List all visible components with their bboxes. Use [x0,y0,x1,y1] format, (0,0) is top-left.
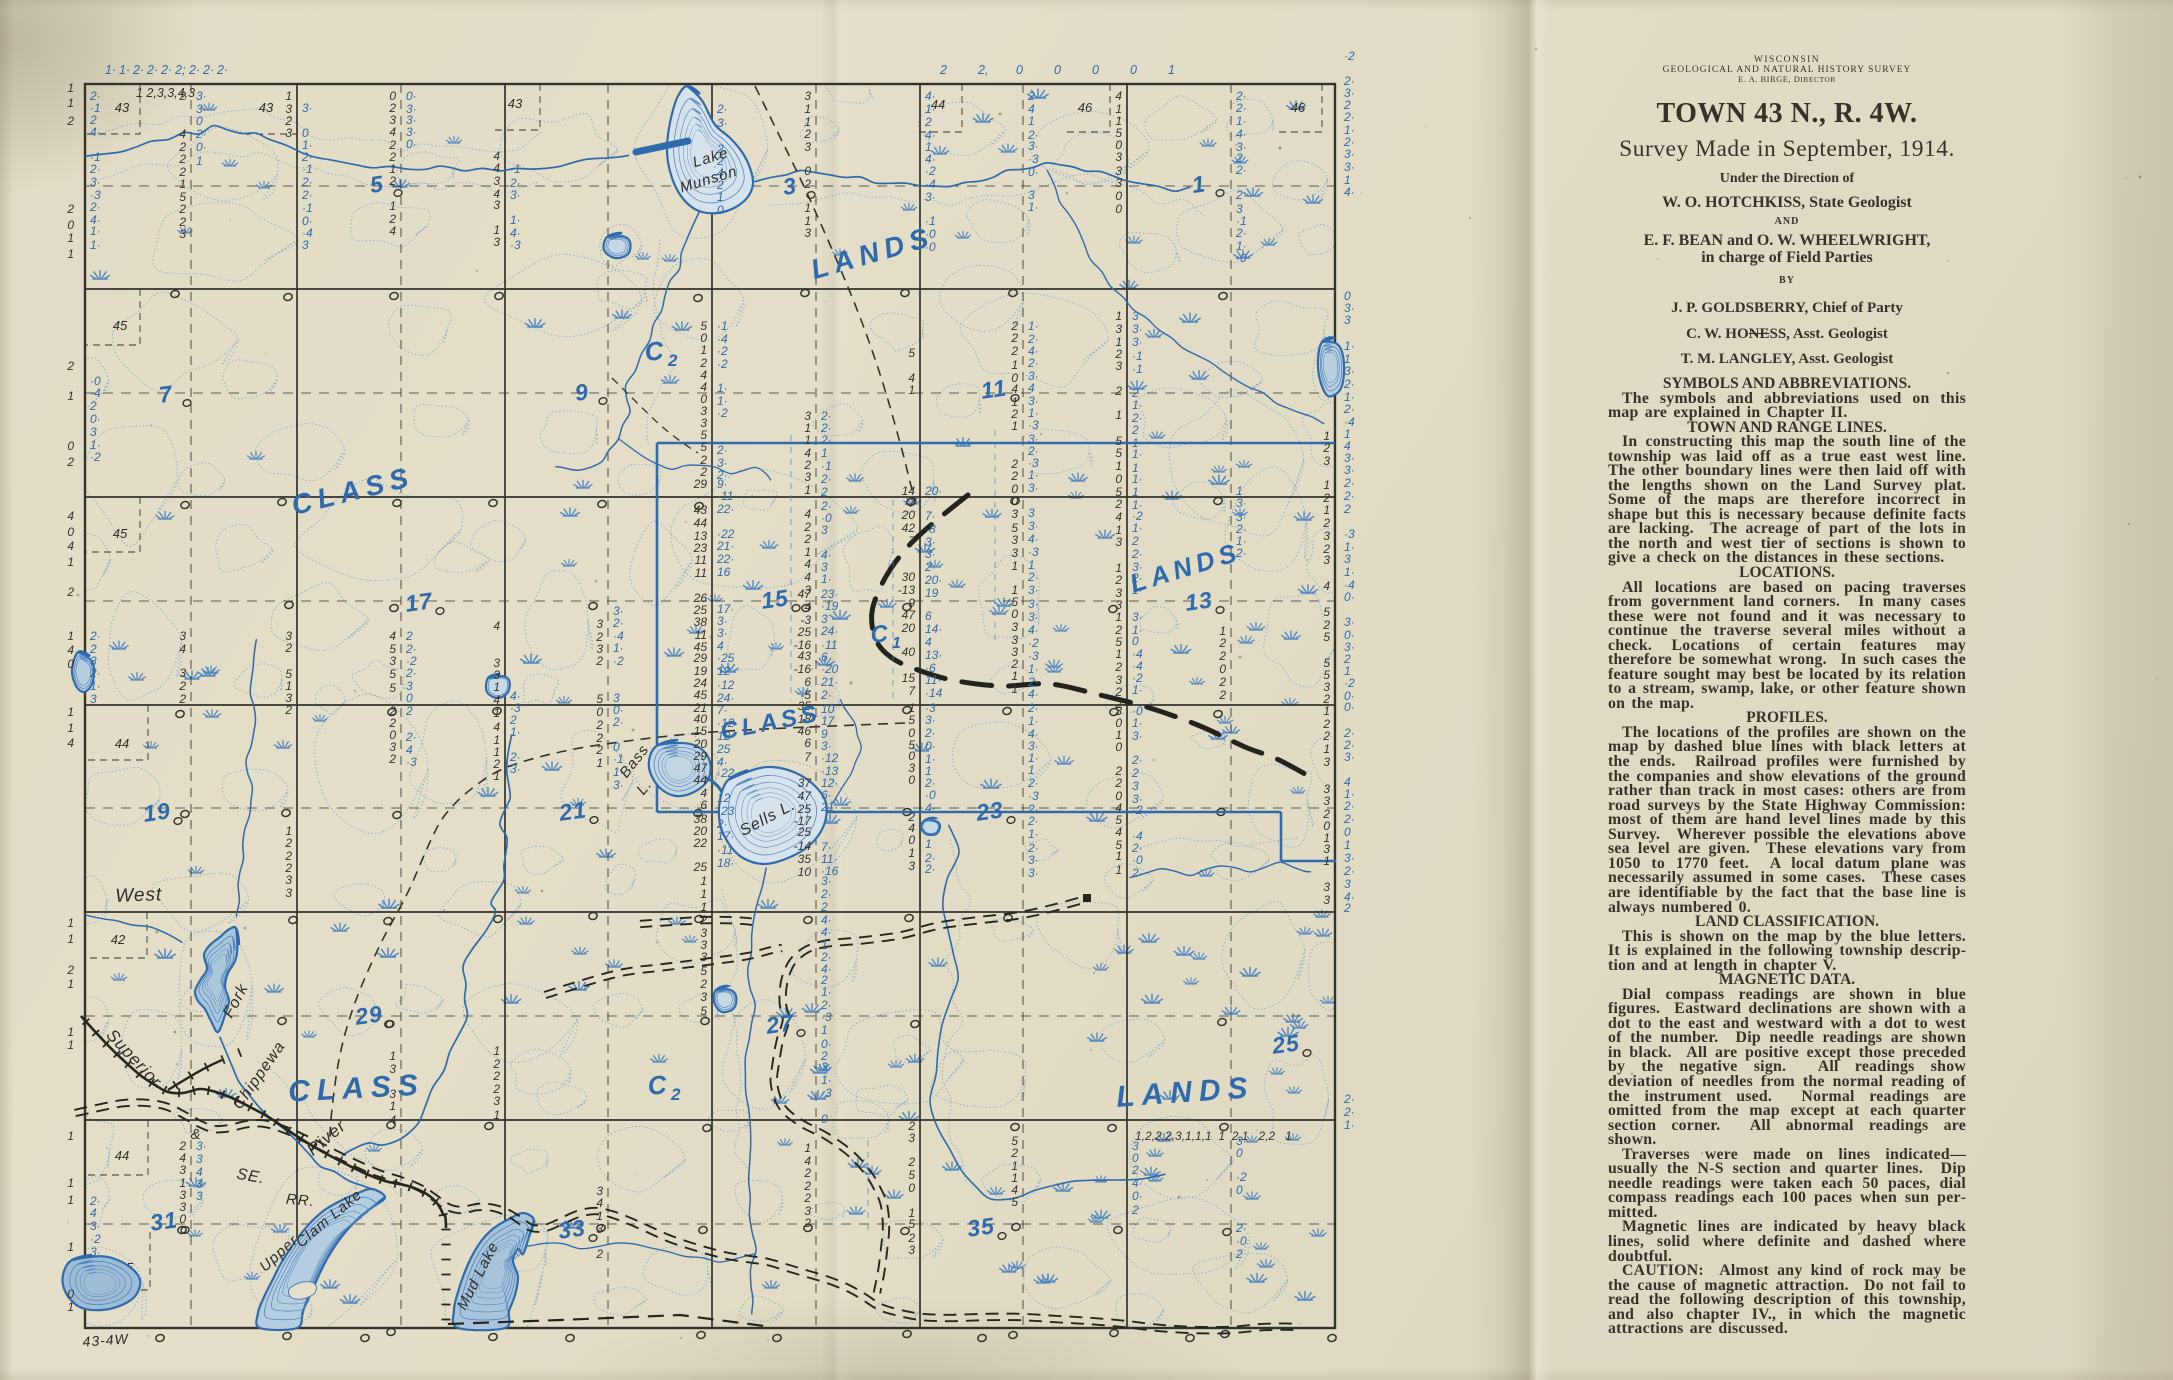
svg-text:3: 3 [1344,313,1351,327]
svg-text:1: 1 [1323,478,1330,492]
svg-text:1: 1 [1115,610,1122,624]
svg-text:2: 2 [667,351,678,370]
svg-text:1: 1 [67,932,74,946]
svg-text:3: 3 [1323,794,1330,808]
svg-text:1: 1 [285,89,292,103]
svg-text:17: 17 [821,714,836,728]
svg-text:1: 1 [908,846,915,860]
svg-text:4: 4 [1323,579,1330,593]
svg-text:3: 3 [908,1243,915,1257]
svg-text:0: 0 [1236,1146,1243,1160]
svg-text:1: 1 [67,705,74,719]
svg-text:11: 11 [695,553,707,567]
svg-text:·3: ·3 [821,1010,832,1024]
svg-text:2·: 2· [1343,864,1355,878]
svg-text:SE.: SE. [235,1166,266,1188]
svg-text:25: 25 [693,860,708,874]
svg-text:6: 6 [804,736,811,750]
svg-text:2: 2 [1114,660,1122,674]
svg-text:2·: 2· [612,616,624,630]
svg-text:C: C [646,1069,669,1101]
svg-text:1: 1 [67,1025,74,1039]
svg-text:3: 3 [1115,535,1122,549]
svg-text:3: 3 [90,425,97,439]
svg-text:1·: 1· [1132,521,1143,535]
svg-text:4·: 4· [925,89,936,103]
svg-text:2·: 2· [1343,1105,1355,1119]
svg-text:2: 2 [66,359,74,373]
svg-text:3: 3 [493,174,500,188]
svg-text:1: 1 [804,102,811,116]
svg-text:·12: ·12 [717,678,735,692]
svg-text:22·: 22· [716,552,734,566]
svg-text:1: 1 [892,635,901,652]
svg-text:2·: 2· [146,63,158,77]
svg-text:·1: ·1 [1132,349,1143,363]
svg-text:2: 2 [1131,766,1139,780]
svg-text:·0: ·0 [1132,853,1143,867]
svg-text:1·: 1· [1132,398,1143,412]
svg-text:1·: 1· [1132,683,1143,697]
svg-text:1: 1 [67,1129,74,1143]
svg-text:1: 1 [804,433,811,447]
svg-text:3: 3 [1132,779,1139,793]
svg-text:1: 1 [1132,485,1139,499]
svg-text:4·: 4· [1028,687,1039,701]
svg-text:1·: 1· [1236,114,1247,128]
svg-text:21·: 21· [820,800,838,814]
svg-text:2: 2 [595,654,603,668]
svg-text:3: 3 [781,172,798,200]
svg-text:2: 2 [1010,469,1018,483]
svg-text:·1: ·1 [302,162,313,176]
svg-text:2·: 2· [1235,163,1247,177]
svg-text:·23: ·23 [717,804,735,818]
svg-text:19: 19 [141,797,172,827]
svg-text:5: 5 [596,692,603,706]
svg-text:3: 3 [1115,176,1122,190]
svg-text:1: 1 [1028,114,1035,128]
svg-text:2·: 2· [89,629,101,643]
svg-text:0·: 0· [1344,590,1355,604]
svg-text:5: 5 [389,681,396,695]
svg-text:21: 21 [556,796,588,826]
svg-text:3: 3 [196,1152,203,1166]
svg-text:·2: ·2 [90,1232,101,1246]
svg-text:40: 40 [902,645,916,659]
svg-text:1·: 1· [90,679,101,693]
svg-text:1·: 1· [1132,716,1143,730]
svg-text:3: 3 [908,1131,915,1145]
svg-text:44: 44 [694,516,708,530]
svg-text:0: 0 [804,164,811,178]
svg-text:1: 1 [717,190,724,204]
svg-text:10: 10 [798,865,812,879]
svg-text:3: 3 [1011,533,1018,547]
svg-text:47: 47 [798,789,813,803]
svg-text:0: 0 [1054,63,1061,77]
svg-text:·2: ·2 [717,357,728,371]
svg-text:1·: 1· [821,985,832,999]
svg-text:·14: ·14 [925,686,943,700]
svg-text:2: 2 [1131,1203,1139,1217]
svg-text:0: 0 [1115,472,1122,486]
svg-text:2: 2 [803,1166,811,1180]
svg-text:0·: 0· [717,203,728,217]
svg-text:43-4W: 43-4W [82,1330,130,1349]
svg-text:24·: 24· [820,624,838,638]
svg-text:2·: 2· [1027,701,1039,715]
svg-text:·3: ·3 [1344,527,1355,541]
svg-text:4: 4 [493,619,500,633]
svg-text:2·: 2· [89,666,101,680]
svg-text:43: 43 [798,649,812,663]
svg-text:-13: -13 [898,583,916,597]
svg-text:3·: 3· [821,1060,832,1074]
svg-text:2: 2 [1010,1146,1018,1160]
svg-text:2: 2 [1010,344,1018,358]
svg-text:1: 1 [67,1240,74,1254]
svg-text:2: 2 [907,1155,915,1169]
svg-text:3·: 3· [1132,322,1143,336]
svg-text:4: 4 [804,507,811,521]
svg-text:27: 27 [763,1009,795,1039]
svg-text:3: 3 [285,873,292,887]
svg-text:·3: ·3 [1028,789,1039,803]
svg-text:15: 15 [759,584,790,614]
svg-text:2·: 2· [301,175,313,189]
svg-text:·2: ·2 [613,654,624,668]
svg-text:1: 1 [179,177,186,191]
svg-text:2: 2 [1218,688,1226,702]
svg-text:44: 44 [115,1148,129,1163]
svg-text:4: 4 [804,557,811,571]
svg-text:3·: 3· [1344,364,1355,378]
svg-text:3: 3 [179,1163,186,1177]
svg-text:3·: 3· [1344,750,1355,764]
svg-text:45: 45 [113,526,128,541]
svg-text:3·: 3· [925,713,936,727]
svg-text:3: 3 [1132,309,1139,323]
svg-text:4: 4 [1028,381,1035,395]
svg-text:1·: 1· [613,641,624,655]
svg-text:3: 3 [1115,150,1122,164]
svg-text:3·: 3· [1344,851,1355,865]
svg-text:3·: 3· [1028,853,1039,867]
svg-text:4: 4 [804,570,811,584]
svg-text:3: 3 [285,886,292,900]
svg-text:2: 2 [820,900,828,914]
svg-text:0: 0 [1011,494,1018,508]
svg-text:2: 2 [1131,423,1139,437]
svg-text:1: 1 [1115,459,1122,473]
svg-text:1: 1 [67,1193,74,1207]
svg-text:0·: 0· [90,412,101,426]
svg-text:1: 1 [804,483,811,497]
svg-text:2: 2 [699,913,707,927]
svg-text:3: 3 [1344,877,1351,891]
svg-text:·0: ·0 [1236,1234,1247,1248]
svg-text:5: 5 [700,964,707,978]
svg-text:2: 2 [178,679,186,693]
svg-text:·4: ·4 [925,177,936,191]
svg-text:2: 2 [405,704,413,718]
svg-text:·25: ·25 [717,651,735,665]
svg-text:1: 1 [493,1108,500,1122]
svg-text:4: 4 [925,635,932,649]
svg-text:3·: 3· [1344,160,1355,174]
svg-text:1: 1 [1011,419,1018,433]
svg-text:17: 17 [403,587,434,617]
svg-text:2·: 2· [132,63,144,77]
svg-text:1: 1 [1344,838,1351,852]
svg-text:2: 2 [492,1069,500,1083]
svg-text:1·: 1· [717,381,728,395]
svg-text:6: 6 [804,675,811,689]
svg-text:22: 22 [693,836,708,850]
svg-text:0: 0 [908,1181,915,1195]
svg-text:4: 4 [67,509,74,523]
svg-text:·2: ·2 [1236,1170,1247,1184]
svg-text:1: 1 [389,1049,396,1063]
svg-text:1: 1 [1168,63,1175,77]
svg-text:1: 1 [821,446,828,460]
svg-text:2·: 2· [820,472,832,486]
svg-text:2·: 2· [301,188,313,202]
svg-text:3·: 3· [1028,519,1039,533]
svg-text:1: 1 [700,874,707,888]
svg-text:5: 5 [1115,446,1122,460]
svg-text:43: 43 [694,503,708,517]
svg-text:1: 1 [925,837,932,851]
svg-text:25: 25 [797,625,812,639]
svg-text:20: 20 [901,621,916,635]
svg-text:0: 0 [1011,607,1018,621]
svg-text:·2: ·2 [1344,676,1355,690]
svg-text:2;: 2; [174,63,186,77]
svg-text:3: 3 [1344,552,1351,566]
svg-text:3: 3 [90,692,97,706]
svg-text:44: 44 [115,736,129,751]
svg-text:3: 3 [389,654,396,668]
svg-text:0·: 0· [1132,1189,1143,1203]
svg-text:·2: ·2 [90,450,101,464]
svg-text:4: 4 [493,161,500,175]
svg-text:2·: 2· [216,63,228,77]
svg-text:0: 0 [67,218,74,232]
svg-text:·3: ·3 [406,755,417,769]
svg-text:3·: 3· [1344,147,1355,161]
svg-text:1·: 1· [1344,565,1355,579]
svg-text:3·: 3· [925,547,936,561]
svg-text:29: 29 [352,1000,384,1030]
svg-text:2,: 2, [977,63,988,77]
svg-text:12: 12 [717,791,731,805]
svg-text:2·: 2· [1131,866,1143,880]
svg-text:2: 2 [803,532,811,546]
svg-text:1: 1 [1011,682,1018,696]
svg-text:3·: 3· [196,89,207,103]
svg-text:2: 2 [284,703,292,717]
svg-text:2: 2 [1322,516,1330,530]
svg-text:3: 3 [285,126,292,140]
svg-text:4: 4 [1115,89,1122,103]
svg-text:4: 4 [67,736,74,750]
svg-text:1·: 1· [821,1073,832,1087]
svg-text:43: 43 [259,100,274,115]
svg-text:3·: 3· [1028,866,1039,880]
svg-text:3: 3 [1115,359,1122,373]
svg-text:2·: 2· [1343,1092,1355,1106]
svg-text:2: 2 [1343,901,1351,915]
svg-text:5: 5 [700,1004,707,1018]
svg-text:1: 1 [67,389,74,403]
svg-text:25: 25 [797,825,812,839]
svg-text:4: 4 [389,629,396,643]
svg-text:2: 2 [405,629,413,643]
svg-text:3·: 3· [1132,335,1143,349]
svg-text:21·: 21· [716,539,734,553]
svg-text:1·: 1· [821,572,832,586]
svg-text:1: 1 [67,81,74,95]
svg-text:3: 3 [804,89,811,103]
svg-text:1: 1 [1115,647,1122,661]
svg-text:2·: 2· [1343,110,1355,124]
svg-text:0: 0 [1115,202,1122,216]
svg-text:1: 1 [1323,503,1330,517]
svg-text:3·: 3· [302,101,313,115]
svg-text:-14: -14 [794,839,812,853]
svg-text:11·: 11· [925,673,941,687]
svg-text:2: 2 [1010,331,1018,345]
svg-text:2: 2 [284,836,292,850]
svg-text:22·: 22· [716,502,734,516]
svg-text:1·: 1· [105,63,116,77]
svg-text:3·: 3· [90,1245,101,1259]
svg-text:15: 15 [902,671,916,685]
svg-text:·11: ·11 [717,843,733,857]
svg-text:1: 1 [804,201,811,215]
svg-text:0: 0 [196,114,203,128]
svg-text:·3: ·3 [1028,152,1039,166]
svg-text:·0: ·0 [925,788,936,802]
svg-text:4: 4 [493,693,500,707]
svg-text:3: 3 [302,238,309,252]
svg-text:0·: 0· [406,137,417,151]
svg-text:5: 5 [368,170,385,198]
svg-text:2: 2 [595,718,603,732]
svg-text:20·: 20· [924,484,942,498]
svg-text:2·: 2· [195,127,207,141]
svg-text:·2: ·2 [717,406,728,420]
svg-text:LANDS: LANDS [1115,1071,1255,1114]
svg-text:3·: 3· [1028,597,1039,611]
svg-text:2: 2 [820,485,828,499]
svg-text:7·: 7· [925,509,936,523]
svg-text:29: 29 [693,651,708,665]
svg-text:1: 1 [493,706,500,720]
svg-text:2: 2 [388,752,396,766]
svg-text:0: 0 [596,705,603,719]
svg-text:3·: 3· [613,778,624,792]
svg-text:18·: 18· [717,856,734,870]
svg-text:·12: ·12 [821,751,839,765]
svg-text:42: 42 [902,521,916,535]
svg-text:2: 2 [66,202,74,216]
svg-text:7: 7 [908,684,916,698]
svg-text:C: C [643,335,666,367]
svg-text:2·: 2· [1027,776,1039,790]
svg-text:1 2,3,3,4,3: 1 2,3,3,4,3 [136,86,195,100]
svg-text:4: 4 [1011,382,1018,396]
svg-text:1: 1 [1323,704,1330,718]
svg-text:2: 2 [1114,573,1122,587]
svg-text:13: 13 [1183,586,1214,616]
svg-text:2·: 2· [612,715,624,729]
svg-text:4: 4 [179,127,186,141]
svg-text:2: 2 [803,1216,811,1230]
svg-text:·8: ·8 [925,522,936,536]
svg-text:4: 4 [493,720,500,734]
svg-text:2·: 2· [188,63,200,77]
svg-text:3: 3 [596,1222,603,1236]
svg-text:35: 35 [798,852,812,866]
svg-text:0·: 0· [1028,165,1039,179]
svg-text:2·: 2· [820,887,832,901]
svg-text:1·: 1· [1028,468,1039,482]
svg-text:0: 0 [1132,634,1139,648]
svg-text:43: 43 [508,96,523,111]
svg-text:2·: 2· [1235,226,1247,240]
svg-text:3: 3 [700,990,707,1004]
svg-text:1: 1 [389,199,396,213]
svg-text:1: 1 [1323,854,1330,868]
svg-text:3: 3 [1011,620,1018,634]
svg-text:1·: 1· [119,63,130,77]
svg-text:5: 5 [908,713,915,727]
svg-text:·20: ·20 [821,662,839,676]
svg-text:1: 1 [67,629,74,643]
svg-text:16: 16 [717,565,731,579]
svg-text:19: 19 [925,586,939,600]
svg-text:3·: 3· [925,190,936,204]
svg-text:2·: 2· [924,560,936,574]
svg-text:3: 3 [1011,507,1018,521]
svg-text:1: 1 [67,1038,74,1052]
svg-text:0: 0 [1130,63,1137,77]
svg-text:4·: 4· [821,925,832,939]
svg-text:4·: 4· [1132,1176,1143,1190]
svg-text:1: 1 [1011,669,1018,683]
svg-text:2: 2 [1235,1247,1243,1261]
svg-text:·3: ·3 [1028,545,1039,559]
svg-text:1: 1 [67,721,74,735]
svg-text:1: 1 [1115,863,1122,877]
svg-text:0: 0 [67,657,74,671]
svg-text:3·: 3· [90,175,101,189]
svg-text:CLASS: CLASS [287,1068,425,1108]
svg-text:37: 37 [798,776,813,790]
svg-text:2·: 2· [1131,547,1143,561]
svg-text:2·: 2· [716,443,728,457]
svg-text:2·: 2· [1027,89,1039,103]
svg-text:20: 20 [901,508,916,522]
svg-text:2·: 2· [1235,188,1247,202]
svg-text:2·: 2· [1343,476,1355,490]
svg-text:0·: 0· [1344,700,1355,714]
svg-text:21·: 21· [820,675,838,689]
svg-text:4: 4 [67,539,74,553]
